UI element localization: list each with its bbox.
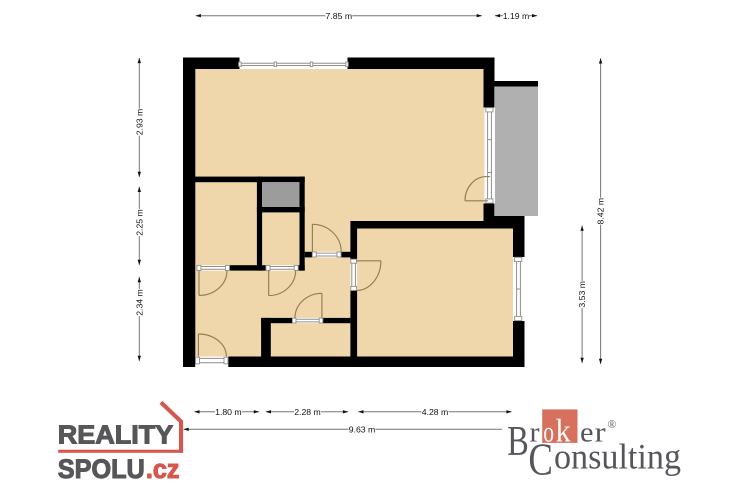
svg-text:2.28 m: 2.28 m (294, 407, 321, 417)
svg-text:1.80 m: 1.80 m (215, 407, 242, 417)
svg-text:1.19 m: 1.19 m (503, 11, 530, 21)
svg-text:B: B (507, 419, 529, 465)
svg-text:8.42 m: 8.42 m (596, 198, 606, 225)
svg-text:2.25 m: 2.25 m (134, 209, 144, 236)
svg-text:7.85 m: 7.85 m (326, 11, 353, 21)
svg-text:2.34 m: 2.34 m (134, 289, 144, 316)
svg-text:REALITY: REALITY (58, 421, 173, 449)
svg-text:onsulting: onsulting (554, 436, 681, 476)
svg-text:9.63 m: 9.63 m (349, 424, 376, 434)
svg-text:3.53 m: 3.53 m (577, 281, 587, 308)
svg-text:SPOLU: SPOLU (58, 454, 145, 484)
svg-text:®: ® (608, 419, 617, 431)
svg-text:.cz: .cz (146, 454, 180, 484)
svg-text:C: C (528, 435, 553, 485)
svg-text:2.93 m: 2.93 m (134, 109, 144, 136)
svg-text:4.28 m: 4.28 m (422, 407, 449, 417)
